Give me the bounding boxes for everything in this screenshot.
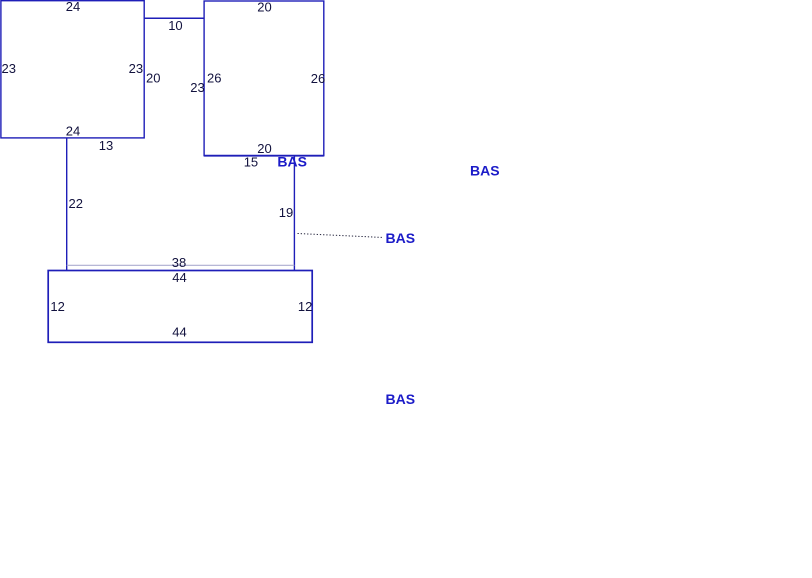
svg-text:23: 23 [129,61,143,76]
svg-text:23: 23 [190,80,204,95]
svg-text:22: 22 [69,196,83,211]
svg-text:24: 24 [66,0,80,14]
svg-text:BAS: BAS [386,230,416,246]
svg-text:BAS: BAS [470,163,500,179]
svg-text:BAS: BAS [386,391,416,407]
svg-text:12: 12 [298,299,312,314]
svg-text:23: 23 [2,61,16,76]
svg-text:12: 12 [50,299,64,314]
svg-text:38: 38 [172,255,186,270]
svg-text:13: 13 [99,138,113,153]
svg-text:44: 44 [172,324,186,339]
svg-text:20: 20 [257,141,271,156]
svg-text:20: 20 [257,0,271,15]
svg-text:20: 20 [146,70,160,85]
svg-text:10: 10 [168,18,182,33]
svg-text:BAS: BAS [277,154,307,170]
svg-text:44: 44 [172,270,186,285]
svg-text:19: 19 [279,205,293,220]
svg-text:26: 26 [311,71,325,86]
svg-text:15: 15 [244,154,258,169]
svg-text:24: 24 [66,123,80,138]
svg-text:26: 26 [207,70,221,85]
